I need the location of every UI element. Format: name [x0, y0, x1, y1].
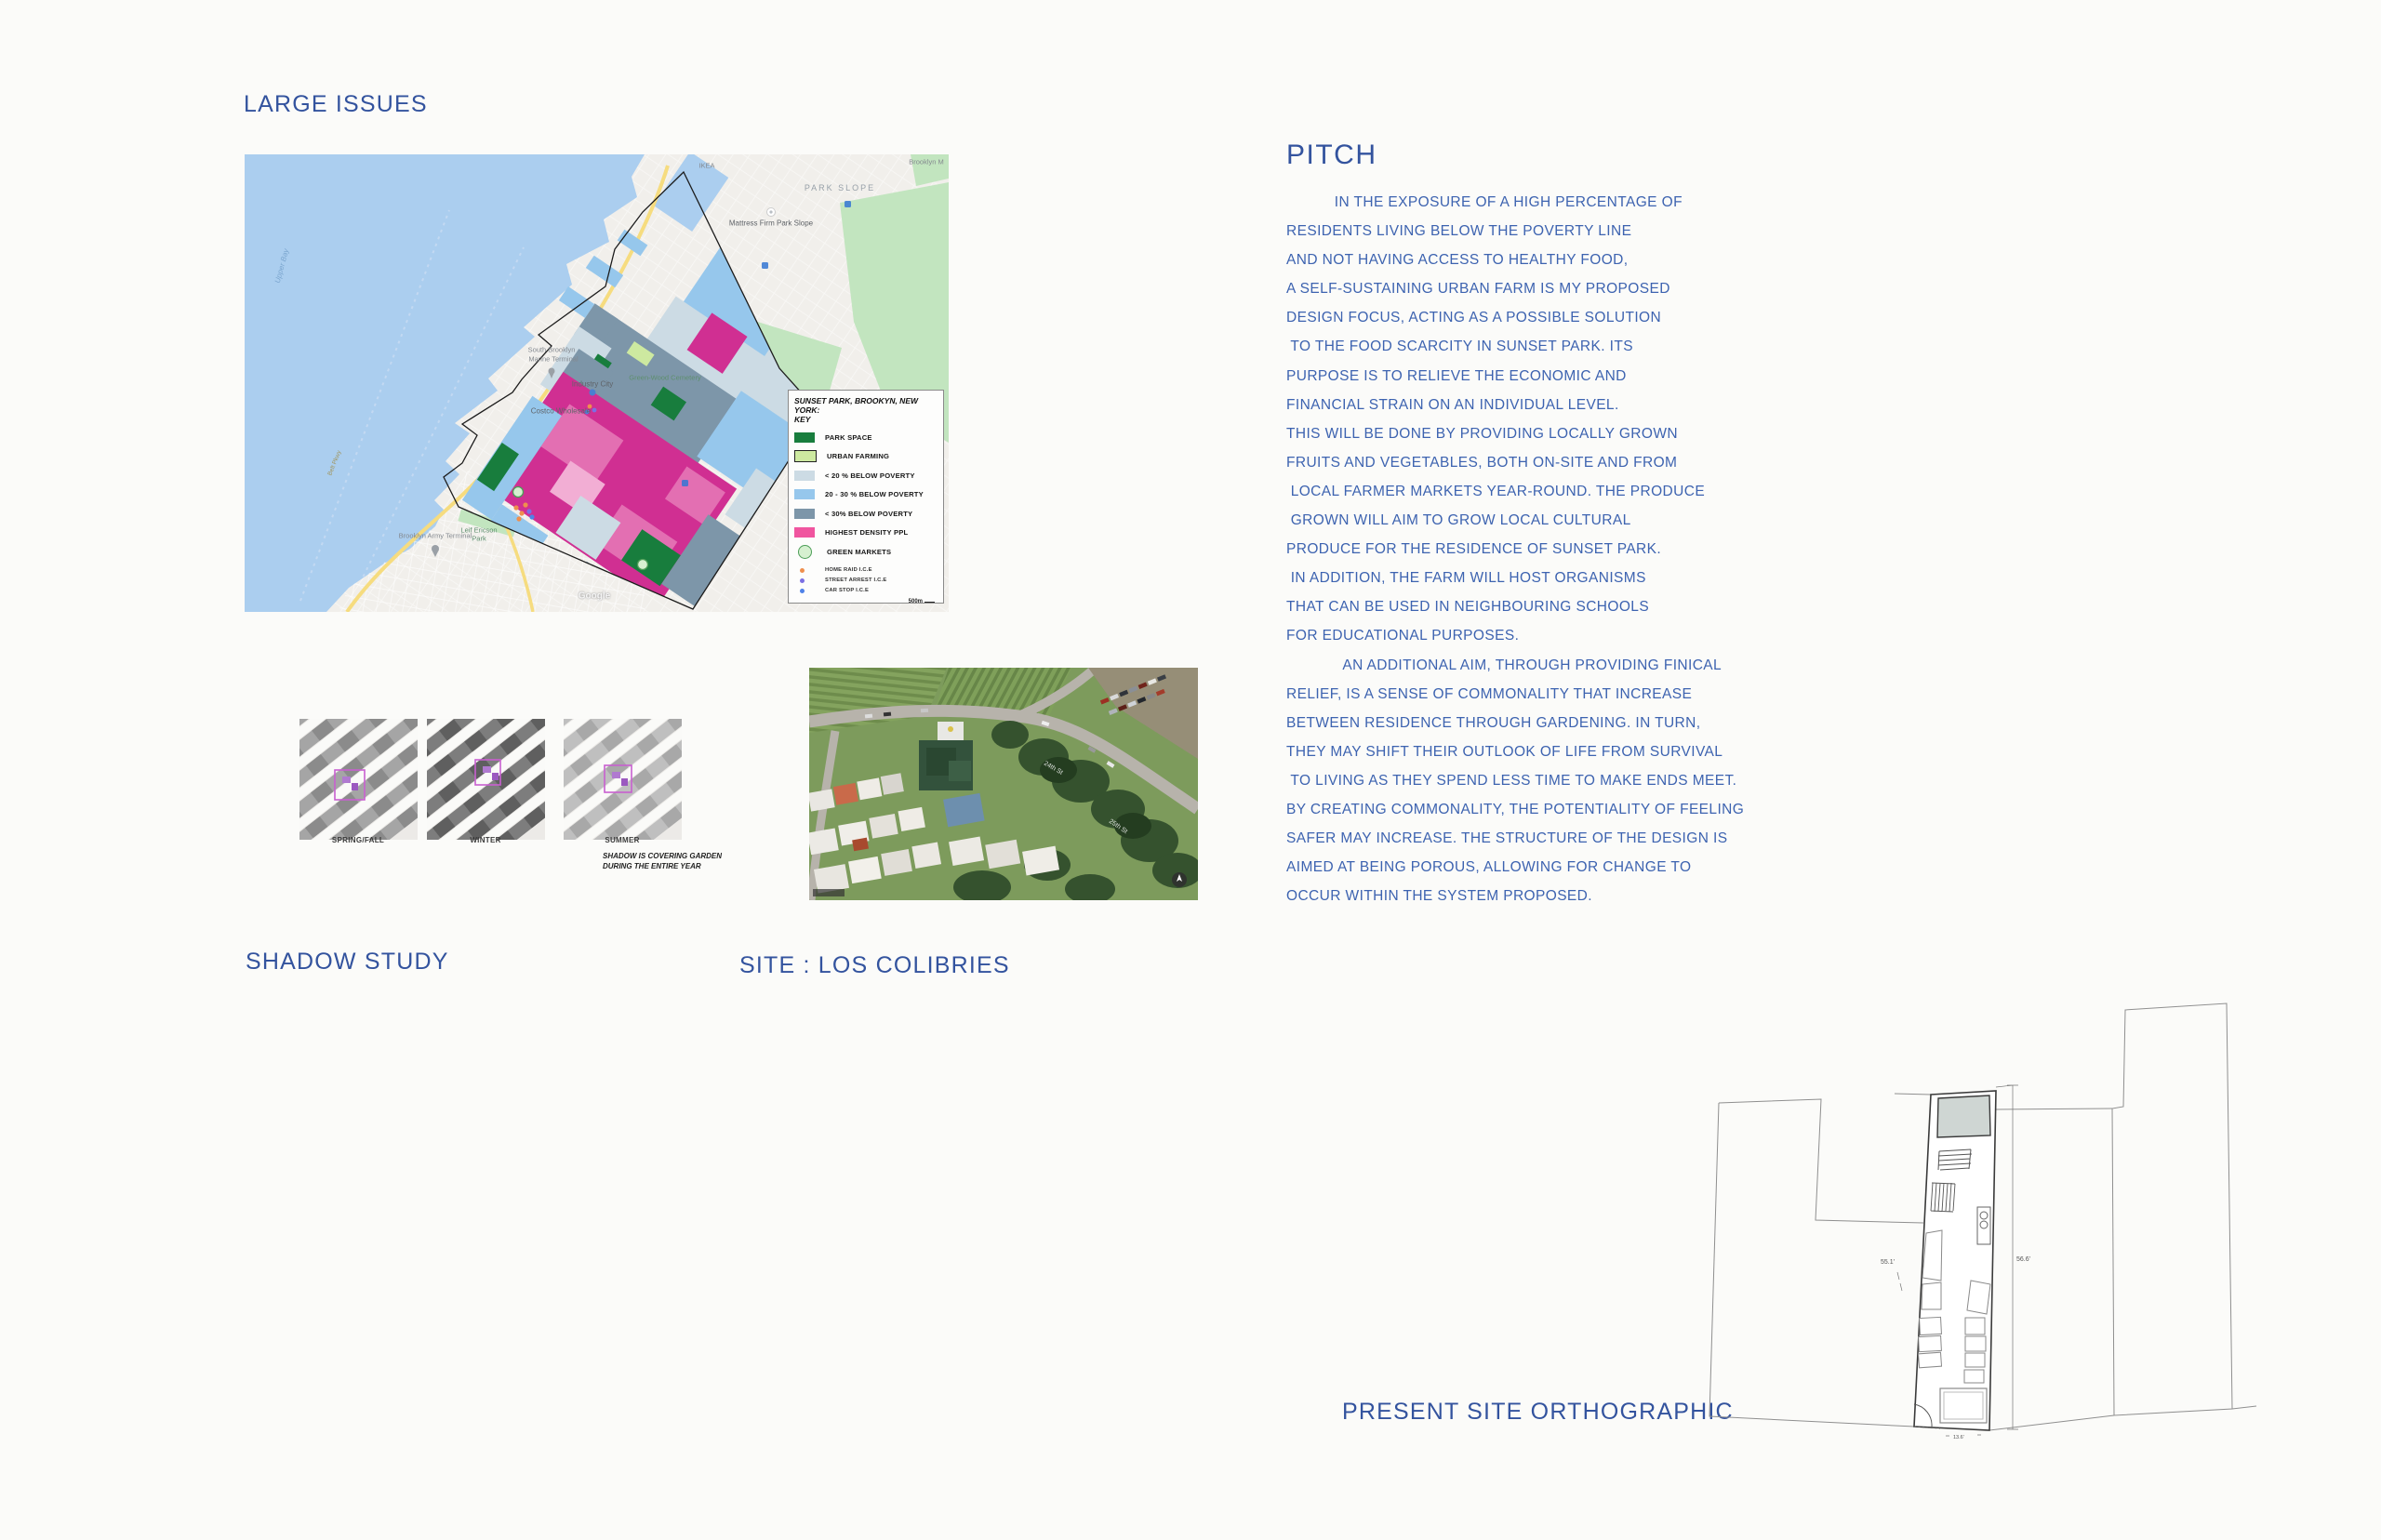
- pitch-line: AN ADDITIONAL AIM, THROUGH PROVIDING FIN…: [1286, 651, 1807, 680]
- map-place-label: Belt Pkwy: [326, 449, 342, 476]
- lot-line-top-right: [1996, 1109, 2112, 1109]
- legend-items: PARK SPACEURBAN FARMING< 20 % BELOW POVE…: [794, 428, 938, 562]
- pitch-line: BETWEEN RESIDENCE THROUGH GARDENING. IN …: [1286, 709, 1807, 737]
- legend-swatch: [794, 450, 817, 462]
- lot-bottom-right: [1989, 1415, 2114, 1430]
- presentation-board: LARGE ISSUES PITCH SHADOW STUDY SITE : L…: [0, 0, 2381, 1540]
- pitch-line: FRUITS AND VEGETABLES, BOTH ON-SITE AND …: [1286, 448, 1807, 477]
- legend-scale: 500m: [794, 599, 938, 604]
- pitch-line: TO LIVING AS THEY SPEND LESS TIME TO MAK…: [1286, 766, 1807, 795]
- legend-swatch: [794, 509, 815, 519]
- pitch-line: SAFER MAY INCREASE. THE STRUCTURE OF THE…: [1286, 824, 1807, 853]
- legend-swatch: [794, 527, 815, 538]
- lot-boundary-left-top: [1719, 1099, 1923, 1223]
- sunset-park-map: PARK SLOPEIKEAMattress Firm Park SlopeSo…: [245, 154, 949, 612]
- shadow-panel-label: SPRING/FALL: [332, 836, 384, 844]
- lot-bottom-far-right: [2232, 1406, 2256, 1409]
- map-place-label: Marine Terminal: [528, 355, 578, 364]
- legend-item: PARK SPACE: [794, 428, 938, 447]
- pitch-line: IN ADDITION, THE FARM WILL HOST ORGANISM…: [1286, 564, 1807, 592]
- shadow-study-panel-spring-fall: [299, 719, 418, 840]
- scale-bar: [813, 889, 845, 896]
- pitch-line: RELIEF, IS A SENSE OF COMMONALITY THAT I…: [1286, 680, 1807, 709]
- legend-title: SUNSET PARK, BROOKYN, NEW YORK:: [794, 396, 938, 415]
- legend-item: GREEN MARKETS: [794, 542, 938, 562]
- dimension-label-right: 56.6': [2016, 1256, 2030, 1263]
- pitch-line: FINANCIAL STRAIN ON AN INDIVIDUAL LEVEL.: [1286, 391, 1807, 419]
- legend-ice-item: CAR STOP I.C.E: [800, 586, 938, 596]
- pitch-line: AIMED AT BEING POROUS, ALLOWING FOR CHAN…: [1286, 853, 1807, 882]
- legend-swatch: [794, 471, 815, 481]
- dimension-label-bottom: 13.6': [1953, 1435, 1964, 1440]
- legend-swatch: [798, 545, 812, 559]
- legend-label: 20 - 30 % BELOW POVERTY: [825, 490, 924, 498]
- legend-ice-label: STREET ARREST I.C.E: [825, 577, 886, 583]
- shadow-panel-label: SUMMER: [605, 836, 639, 844]
- legend-item: 20 - 30 % BELOW POVERTY: [794, 485, 938, 505]
- shadow-study-note: SHADOW IS COVERING GARDEN DURING THE ENT…: [603, 852, 722, 871]
- map-place-label: Park: [472, 535, 486, 543]
- map-place-label: South Brooklyn: [528, 346, 576, 354]
- legend-ice-item: STREET ARREST I.C.E: [800, 576, 938, 586]
- present-site-orthographic-drawing: 55.1' 56.6' 13.6': [1702, 986, 2260, 1451]
- pitch-line: PURPOSE IS TO RELIEVE THE ECONOMIC AND: [1286, 362, 1807, 391]
- legend-swatch: [794, 489, 815, 499]
- legend-ice-dot: [800, 578, 805, 583]
- map-place-label: Google: [579, 591, 610, 602]
- pitch-line: PRODUCE FOR THE RESIDENCE OF SUNSET PARK…: [1286, 535, 1807, 564]
- map-place-label: Green-Wood Cemetery: [629, 374, 700, 382]
- greenhouse-area: [1937, 1095, 1990, 1137]
- site-aerial-photo: 24th St 25th St: [809, 668, 1198, 900]
- legend-ice-label: HOME RAID I.C.E: [825, 567, 872, 573]
- legend-ice-item: HOME RAID I.C.E: [800, 565, 938, 576]
- map-legend: SUNSET PARK, BROOKYN, NEW YORK: KEY PARK…: [788, 390, 944, 604]
- shadow-study-panel-summer: [564, 719, 682, 840]
- pitch-line: THAT CAN BE USED IN NEIGHBOURING SCHOOLS: [1286, 592, 1807, 621]
- pitch-line: THEY MAY SHIFT THEIR OUTLOOK OF LIFE FRO…: [1286, 737, 1807, 766]
- legend-item: < 20 % BELOW POVERTY: [794, 466, 938, 485]
- legend-item: URBAN FARMING: [794, 447, 938, 467]
- pitch-line: IN THE EXPOSURE OF A HIGH PERCENTAGE OF: [1286, 188, 1807, 217]
- legend-swatch: [794, 432, 815, 443]
- legend-item: < 30% BELOW POVERTY: [794, 504, 938, 524]
- heading-shadow-study: SHADOW STUDY: [246, 949, 449, 976]
- legend-item: HIGHEST DENSITY PPL: [794, 524, 938, 543]
- legend-ice-items: HOME RAID I.C.ESTREET ARREST I.C.ECAR ST…: [794, 565, 938, 596]
- pitch-line: AND NOT HAVING ACCESS TO HEALTHY FOOD,: [1286, 246, 1807, 274]
- heading-large-issues: LARGE ISSUES: [244, 91, 428, 118]
- pitch-line: BY CREATING COMMONALITY, THE POTENTIALIT…: [1286, 795, 1807, 824]
- pitch-line: GROWN WILL AIM TO GROW LOCAL CULTURAL: [1286, 506, 1807, 535]
- map-place-label: Costco Wholesale: [531, 407, 591, 416]
- wc-unit: [1977, 1207, 1990, 1244]
- heading-site: SITE : LOS COLIBRIES: [739, 952, 1010, 979]
- legend-label: < 30% BELOW POVERTY: [825, 510, 912, 518]
- legend-ice-dot: [800, 568, 805, 573]
- dimension-label-left: 55.1': [1881, 1259, 1895, 1266]
- shadow-panel-label: WINTER: [470, 836, 500, 844]
- legend-title-key: KEY: [794, 415, 938, 424]
- pitch-paragraph: IN THE EXPOSURE OF A HIGH PERCENTAGE OFR…: [1286, 188, 1807, 910]
- heading-present-site-orthographic: PRESENT SITE ORTHOGRAPHIC: [1342, 1399, 1734, 1426]
- map-place-label: Brooklyn M: [909, 158, 944, 166]
- legend-label: HIGHEST DENSITY PPL: [825, 528, 908, 537]
- pitch-line: OCCUR WITHIN THE SYSTEM PROPOSED.: [1286, 882, 1807, 910]
- lot-boundary-right: [2112, 1003, 2232, 1415]
- map-place-label: Leif Ericson: [460, 526, 497, 535]
- map-place-label: PARK SLOPE: [805, 183, 875, 192]
- map-place-label: Industry City: [572, 380, 613, 389]
- pitch-line: THIS WILL BE DONE BY PROVIDING LOCALLY G…: [1286, 419, 1807, 448]
- legend-label: URBAN FARMING: [827, 452, 889, 460]
- legend-label: < 20 % BELOW POVERTY: [825, 471, 915, 480]
- pitch-line: A SELF-SUSTAINING URBAN FARM IS MY PROPO…: [1286, 274, 1807, 303]
- pitch-line: RESIDENTS LIVING BELOW THE POVERTY LINE: [1286, 217, 1807, 246]
- pitch-line: LOCAL FARMER MARKETS YEAR-ROUND. THE PRO…: [1286, 477, 1807, 506]
- map-place-label: Mattress Firm Park Slope: [729, 219, 813, 228]
- legend-ice-label: CAR STOP I.C.E: [825, 588, 869, 593]
- pitch-line: DESIGN FOCUS, ACTING AS A POSSIBLE SOLUT…: [1286, 303, 1807, 332]
- heading-pitch: PITCH: [1286, 139, 1377, 171]
- pitch-line: TO THE FOOD SCARCITY IN SUNSET PARK. ITS: [1286, 332, 1807, 361]
- map-place-label: IKEA: [698, 162, 714, 170]
- pitch-line: FOR EDUCATIONAL PURPOSES.: [1286, 621, 1807, 650]
- legend-ice-dot: [800, 589, 805, 593]
- map-place-label: Upper Bay: [273, 248, 290, 285]
- lot-line-top-left: [1895, 1094, 1931, 1095]
- legend-label: GREEN MARKETS: [827, 548, 891, 556]
- legend-label: PARK SPACE: [825, 433, 872, 442]
- shadow-study-panel-winter: [427, 719, 545, 840]
